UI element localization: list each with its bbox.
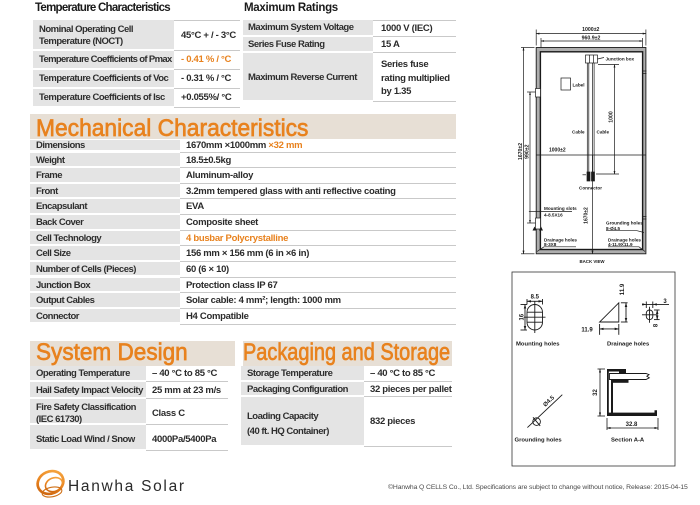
- svg-text:960.9±2: 960.9±2: [582, 36, 601, 42]
- svg-text:16: 16: [520, 313, 526, 320]
- svg-text:1670±2: 1670±2: [518, 143, 524, 160]
- svg-text:Mounting slots: Mounting slots: [544, 206, 577, 211]
- svg-text:Grounding holes: Grounding holes: [515, 438, 563, 444]
- svg-text:BACK VIEW: BACK VIEW: [579, 259, 605, 264]
- svg-text:990±2: 990±2: [525, 144, 531, 159]
- svg-text:8-3X8: 8-3X8: [544, 242, 557, 247]
- svg-text:Connector: Connector: [579, 186, 602, 191]
- svg-text:Cable: Cable: [572, 130, 585, 135]
- svg-text:Cable: Cable: [597, 130, 610, 135]
- svg-text:32: 32: [593, 389, 599, 396]
- svg-text:1000±2: 1000±2: [582, 27, 599, 33]
- svg-text:Label: Label: [573, 83, 585, 88]
- svg-text:8-Ø4.5: 8-Ø4.5: [606, 226, 620, 231]
- svg-text:1000: 1000: [609, 111, 615, 123]
- svg-text:Section A-A: Section A-A: [611, 438, 645, 444]
- svg-text:8.5: 8.5: [531, 295, 540, 301]
- svg-text:Drainage holes: Drainage holes: [607, 342, 650, 348]
- svg-text:8: 8: [654, 323, 660, 327]
- svg-text:32.8: 32.8: [626, 422, 638, 428]
- svg-text:11.9: 11.9: [581, 327, 593, 333]
- svg-text:1000±2: 1000±2: [549, 148, 566, 154]
- svg-text:Hanwha Solar: Hanwha Solar: [68, 478, 186, 495]
- svg-text:1670±2: 1670±2: [584, 207, 590, 224]
- svg-text:Grounding holes: Grounding holes: [606, 221, 643, 226]
- svg-text:Mounting holes: Mounting holes: [516, 342, 560, 348]
- svg-text:11.9: 11.9: [620, 283, 626, 295]
- svg-text:4-8.5X16: 4-8.5X16: [544, 213, 563, 218]
- svg-text:4-11.9X11.9: 4-11.9X11.9: [608, 242, 633, 247]
- svg-text:Junction box: Junction box: [606, 57, 635, 62]
